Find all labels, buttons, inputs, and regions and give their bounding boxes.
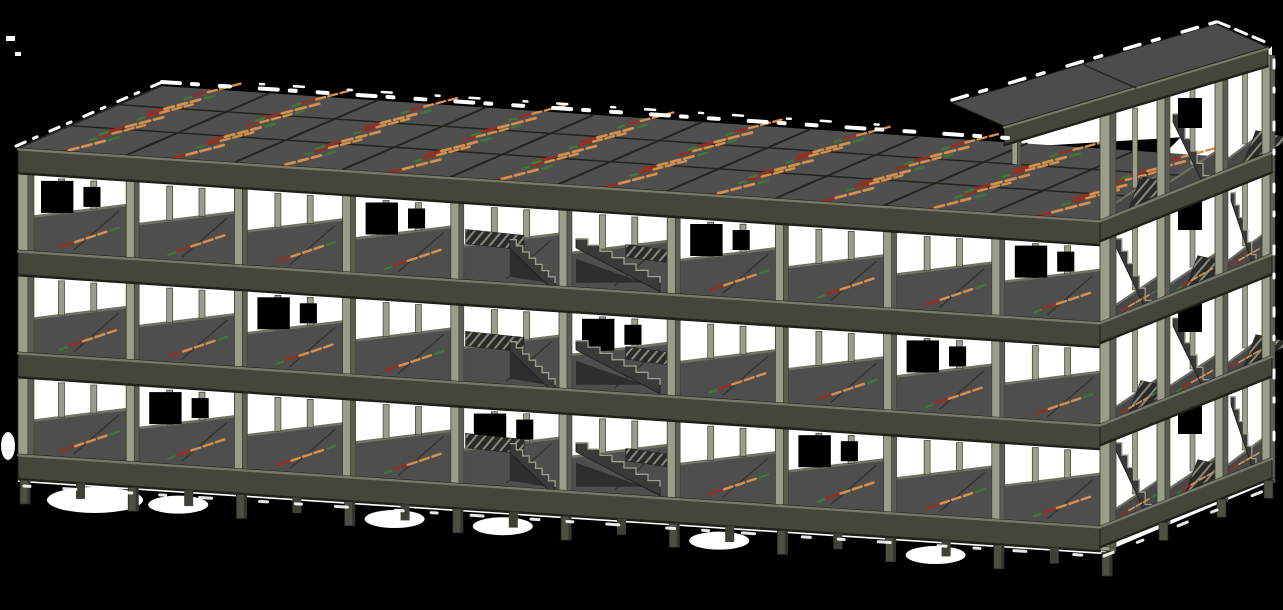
structural-model-screenshot — [0, 0, 1283, 610]
model-viewport[interactable] — [0, 0, 1283, 610]
